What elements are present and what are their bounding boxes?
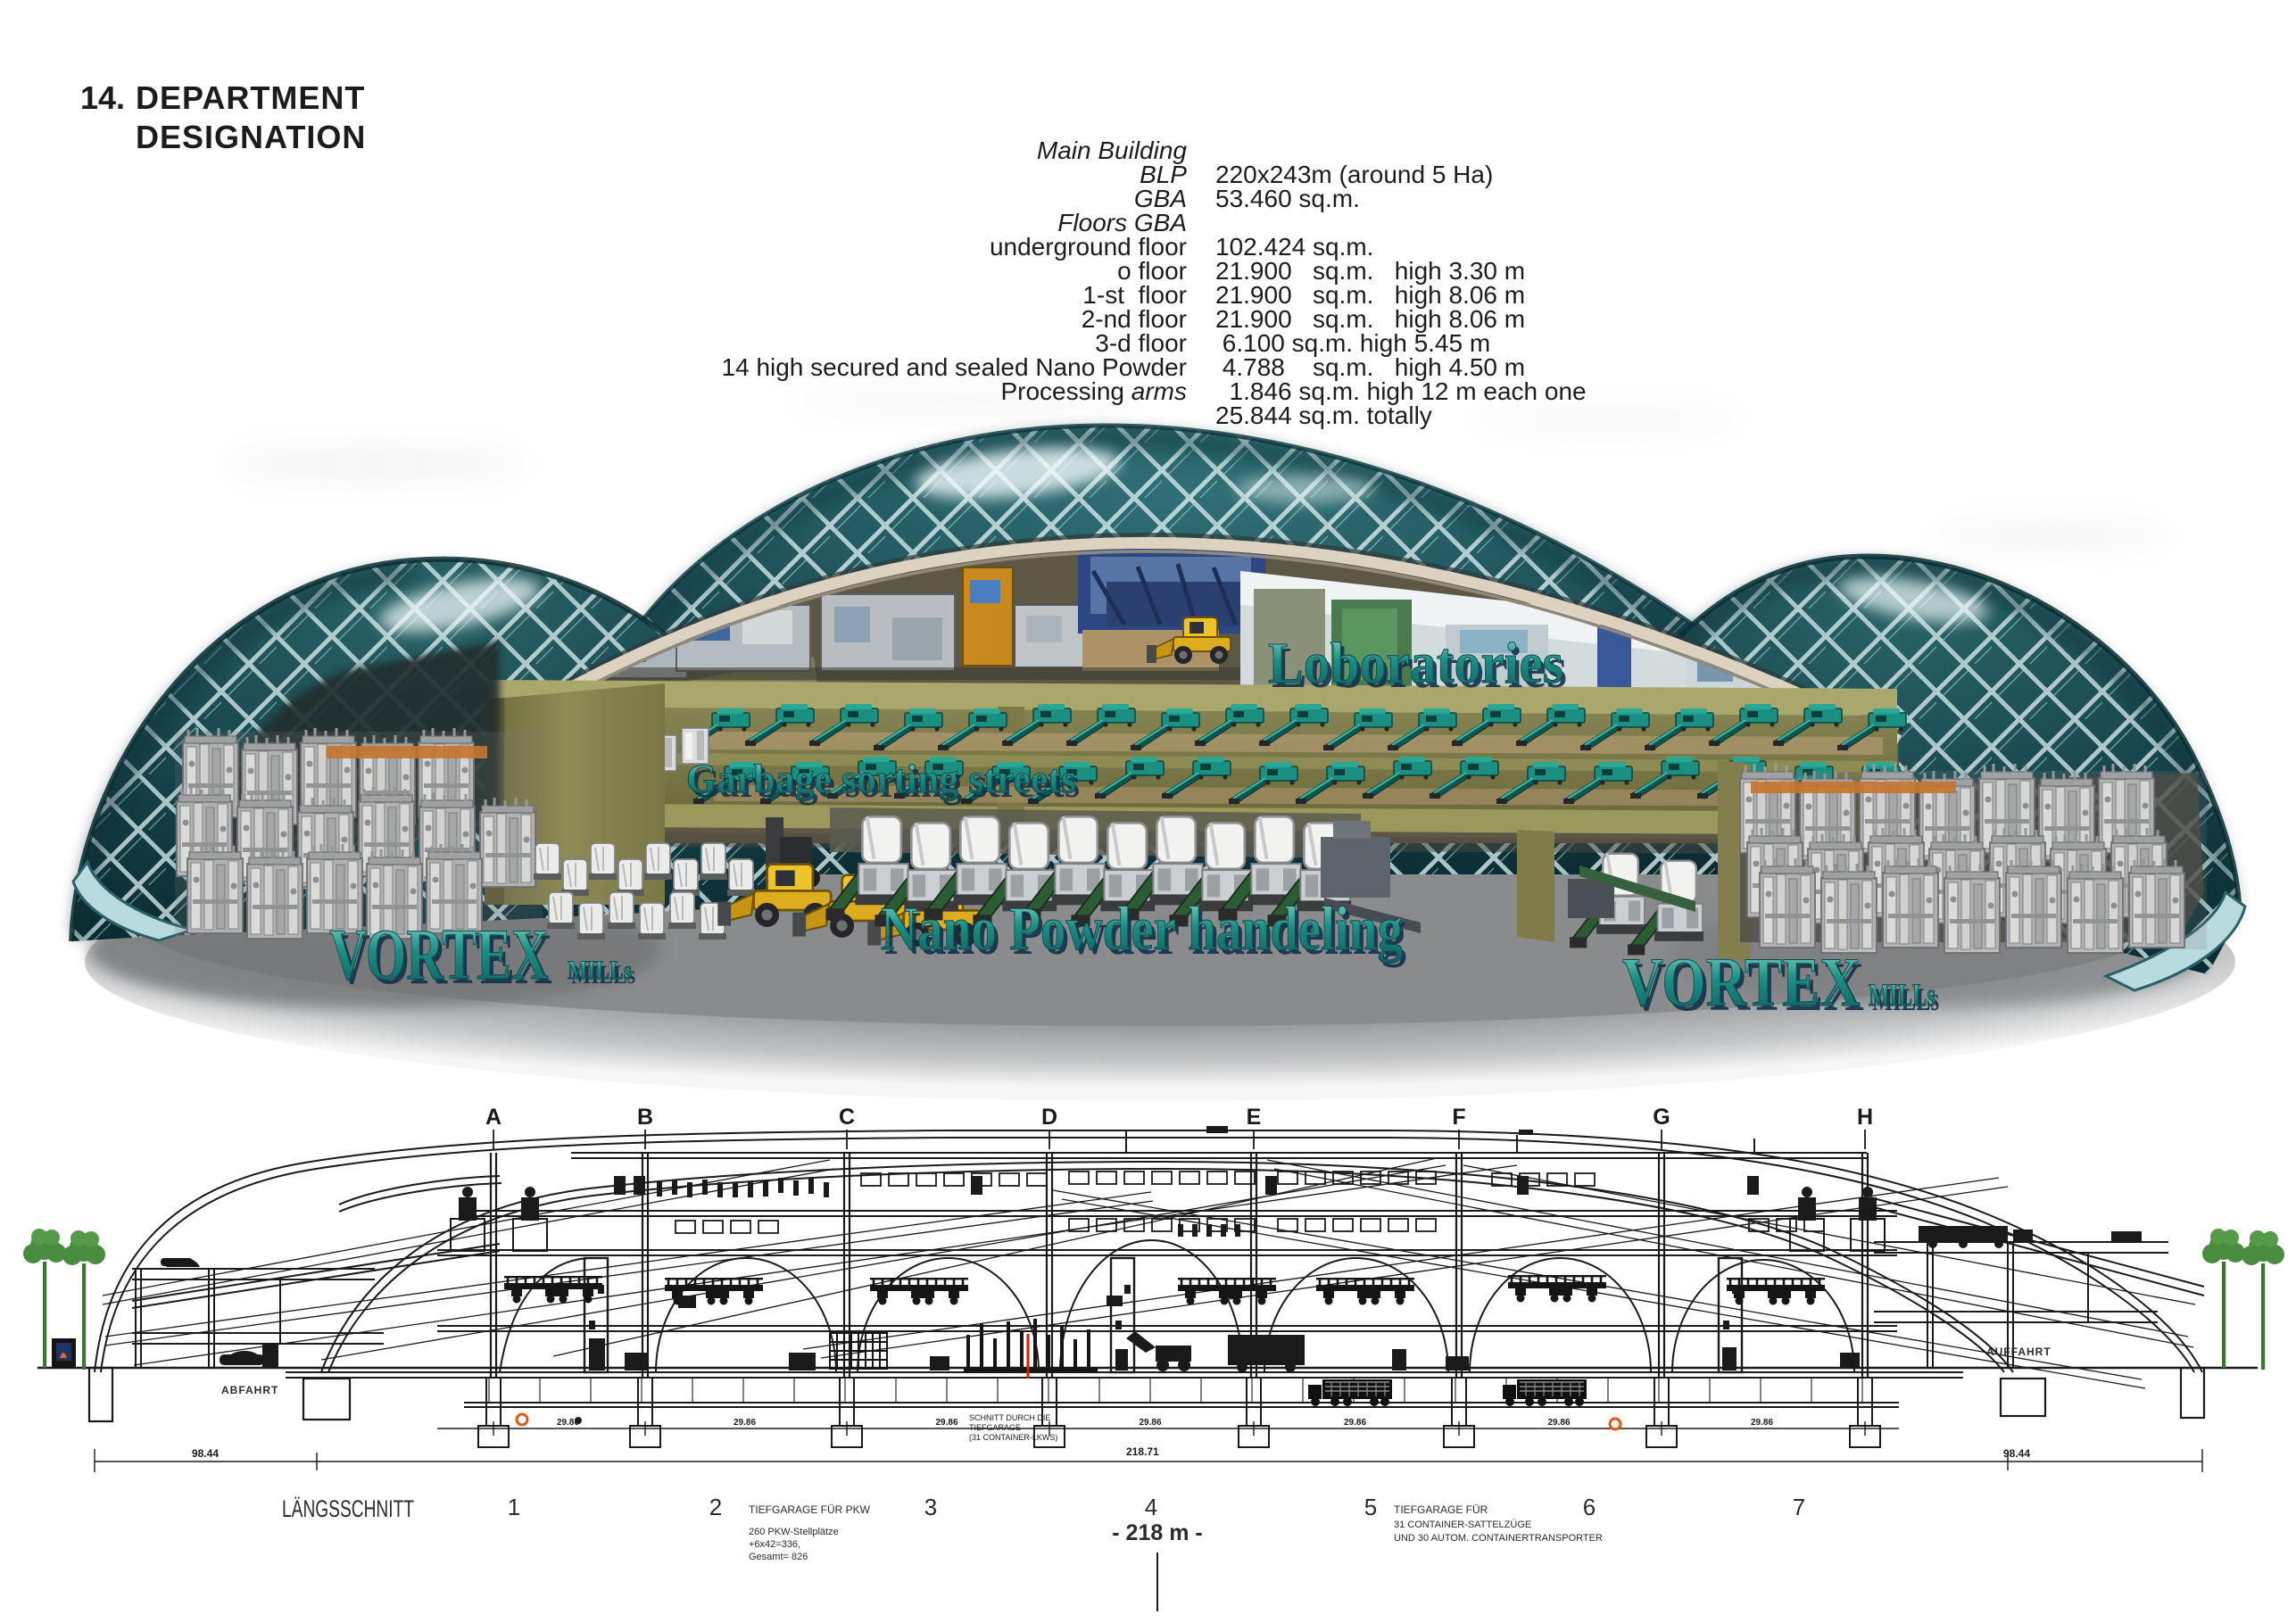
svg-text:14.: 14. [80, 79, 125, 116]
svg-text:Loboratories: Loboratories [1268, 631, 1563, 696]
svg-text:G: G [1653, 1105, 1670, 1130]
svg-text:+6x42=336,: +6x42=336, [749, 1539, 800, 1550]
svg-text:Gesamt= 826: Gesamt= 826 [749, 1552, 808, 1562]
svg-text:1: 1 [508, 1494, 520, 1520]
svg-text:29.86: 29.86 [1344, 1418, 1366, 1428]
svg-text:31 CONTAINER-SATTELZÜGE: 31 CONTAINER-SATTELZÜGE [1394, 1519, 1531, 1530]
svg-text:29.86: 29.86 [734, 1418, 756, 1428]
svg-text:25.844 sq.m. totally: 25.844 sq.m. totally [1215, 402, 1432, 429]
svg-text:29.86: 29.86 [1140, 1418, 1162, 1428]
svg-text:218.71: 218.71 [1126, 1445, 1159, 1458]
svg-text:29.86: 29.86 [936, 1418, 958, 1428]
svg-text:B: B [637, 1105, 653, 1130]
svg-text:Processing arms: Processing arms [1000, 377, 1187, 405]
svg-text:29.86: 29.86 [1548, 1418, 1571, 1428]
svg-text:- 218 m -: - 218 m - [1112, 1520, 1202, 1545]
svg-text:VORTEX: VORTEX [1622, 943, 1861, 1021]
svg-text:H: H [1857, 1105, 1873, 1130]
svg-text:4: 4 [1145, 1494, 1157, 1520]
svg-text:2: 2 [709, 1494, 722, 1520]
svg-text:D: D [1041, 1105, 1057, 1130]
svg-text:C: C [839, 1105, 855, 1130]
svg-text:98.44: 98.44 [2003, 1447, 2030, 1460]
svg-text:UND 30 AUTOM. CONTAINERTRANSPO: UND 30 AUTOM. CONTAINERTRANSPORTER [1394, 1533, 1603, 1544]
svg-text:DEPARTMENT: DEPARTMENT [136, 79, 365, 116]
svg-text:E: E [1247, 1105, 1262, 1130]
svg-text:SCHNITT DURCH DIE: SCHNITT DURCH DIE [969, 1413, 1050, 1422]
svg-text:53.460 sq.m.: 53.460 sq.m. [1215, 185, 1360, 212]
svg-text:TIEFGARAGE FÜR: TIEFGARAGE FÜR [1394, 1503, 1488, 1516]
svg-text:MILLs: MILLs [568, 956, 632, 985]
svg-text:LÄNGSSCHNITT: LÄNGSSCHNITT [282, 1495, 414, 1522]
svg-text:(31 CONTAINER-LKWS): (31 CONTAINER-LKWS) [969, 1433, 1057, 1442]
svg-text:260 PKW-Stellplätze: 260 PKW-Stellplätze [749, 1527, 839, 1537]
svg-text:TIEFGARAGE: TIEFGARAGE [969, 1423, 1021, 1432]
svg-text:F: F [1452, 1105, 1465, 1130]
svg-text:Garbage sorting streets: Garbage sorting streets [686, 757, 1076, 801]
svg-text:DESIGNATION: DESIGNATION [136, 119, 366, 155]
svg-text:7: 7 [1793, 1494, 1805, 1520]
svg-text:TIEFGARAGE FÜR PKW: TIEFGARAGE FÜR PKW [749, 1503, 871, 1516]
svg-text:ABFAHRT: ABFAHRT [221, 1384, 278, 1396]
svg-text:MILLs: MILLs [1869, 977, 1935, 1013]
svg-text:VORTEX: VORTEX [329, 914, 549, 995]
svg-text:Nano Powder handeling: Nano Powder handeling [881, 895, 1403, 964]
svg-text:29.86: 29.86 [1751, 1418, 1773, 1428]
svg-text:AUFFAHRT: AUFFAHRT [1986, 1346, 2051, 1358]
svg-text:5: 5 [1364, 1494, 1377, 1520]
svg-text:98.44: 98.44 [192, 1447, 219, 1460]
svg-text:3: 3 [924, 1494, 937, 1520]
svg-text:A: A [485, 1105, 501, 1130]
svg-text:6: 6 [1583, 1494, 1596, 1520]
